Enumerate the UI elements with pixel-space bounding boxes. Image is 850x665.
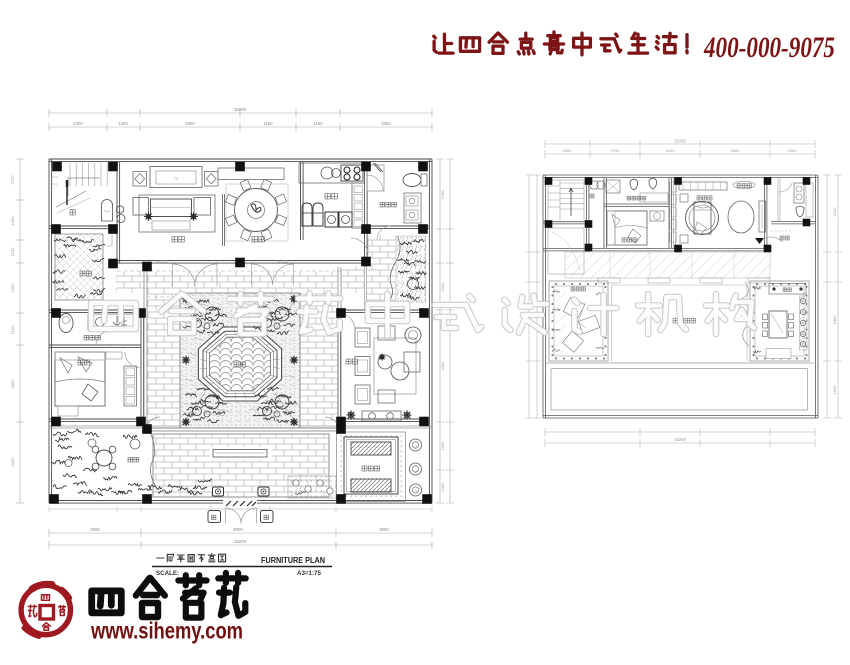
svg-text:3000: 3000 [90,527,100,532]
svg-text:3400: 3400 [440,361,445,371]
svg-text:2300: 2300 [73,121,83,126]
svg-text:1300: 1300 [440,482,445,492]
svg-text:1650: 1650 [10,283,15,293]
svg-text:SCALE:: SCALE: [156,570,179,577]
svg-text:3300: 3300 [731,148,741,153]
svg-text:15200: 15200 [234,107,247,112]
svg-text:www.sihemy.com: www.sihemy.com [90,618,243,644]
svg-text:1500: 1500 [832,385,837,395]
svg-text:2700: 2700 [10,175,15,185]
svg-text:3850: 3850 [10,379,15,389]
svg-text:M-1521: M-1521 [277,260,289,264]
svg-text:1300: 1300 [118,121,128,126]
svg-text:1500: 1500 [440,441,445,451]
svg-text:M-1521: M-1521 [156,260,168,264]
svg-text:2300: 2300 [563,148,573,153]
svg-text:4500: 4500 [185,121,195,126]
svg-text:1150: 1150 [313,121,323,126]
svg-text:1150: 1150 [10,247,15,256]
svg-text:2700: 2700 [611,148,621,153]
svg-text:15200: 15200 [674,139,686,144]
svg-text:2300: 2300 [788,148,798,153]
svg-text:2350: 2350 [381,121,391,126]
svg-text:8000: 8000 [233,527,243,532]
svg-text:FURNITURE PLAN: FURNITURE PLAN [261,556,325,565]
svg-text:1100: 1100 [10,325,15,334]
svg-text:TV: TV [173,176,178,181]
svg-text:3250: 3250 [10,457,15,467]
svg-text:15200: 15200 [234,539,247,544]
svg-text:2700: 2700 [832,207,837,217]
svg-text:1150: 1150 [263,121,273,126]
svg-text:1400: 1400 [10,216,15,226]
svg-text:4100: 4100 [666,148,676,153]
svg-text:2700: 2700 [440,190,445,200]
svg-text:1900: 1900 [440,282,445,292]
svg-text:A3=1:75: A3=1:75 [297,570,321,577]
svg-text:3400: 3400 [832,315,837,325]
svg-text:3000: 3000 [379,527,389,532]
svg-text:400-000-9075: 400-000-9075 [703,31,835,64]
svg-text:15200: 15200 [674,437,686,442]
